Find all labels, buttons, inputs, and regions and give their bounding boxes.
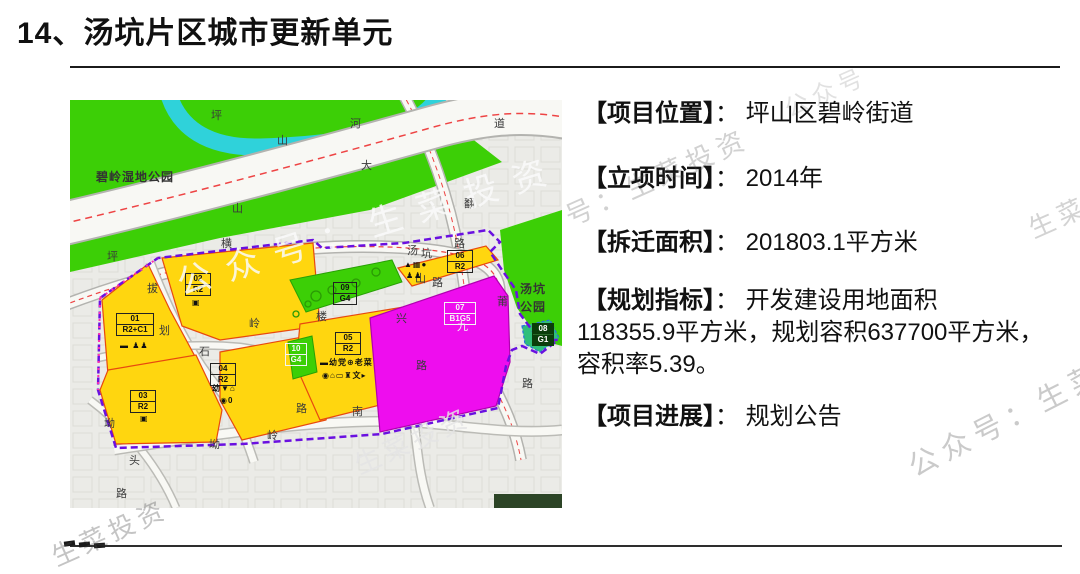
- road-name-char: 路: [432, 278, 443, 289]
- info-value: ： 规划公告: [715, 403, 842, 430]
- zoning-map: 碧岭湿地公园 汤坑 公园 坪 山 河 大 道 山 坪 横 翻 莆 汤 坑 路 山…: [70, 100, 562, 508]
- parcel-code: 06: [448, 251, 472, 261]
- parcel-label-09: 09 G4: [333, 282, 357, 305]
- info-label: 【规划指标】: [583, 287, 715, 314]
- facility-icons-05b: ◉⌂▭♜文▸: [322, 371, 367, 381]
- parcel-label-04: 04 R2: [210, 363, 236, 386]
- parcel-label-07: 07 B1G5: [444, 302, 476, 325]
- parcel-use: R2: [448, 261, 472, 272]
- parcel-use: G1: [533, 334, 553, 345]
- facility-icons-04a: 幼▼⌂: [212, 384, 236, 394]
- road-name-char: 岭: [267, 431, 278, 442]
- footer-divider: [70, 545, 1062, 547]
- parcel-label-08: 08 G1: [532, 323, 554, 346]
- info-value: ： 开发建设用地面积: [715, 287, 938, 314]
- facility-icons-03: ▣: [140, 414, 149, 424]
- parcel-code: 01: [117, 314, 153, 324]
- info-planning-line3: 容积率5.39。: [577, 344, 720, 379]
- parcel-code: 05: [336, 333, 360, 343]
- parcel-label-01: 01 R2+C1: [116, 313, 154, 336]
- info-label: 【拆迁面积】: [583, 229, 715, 256]
- page-title: 14、汤坑片区城市更新单元: [17, 8, 393, 52]
- road-name-char: 汤: [407, 246, 418, 257]
- parcel-label-10: 10 G4: [285, 343, 307, 366]
- info-value: ： 坪山区碧岭街道: [715, 100, 914, 127]
- parcel-label-03: 03 R2: [130, 390, 156, 413]
- info-value: ： 201803.1平方米: [715, 229, 918, 256]
- parcel-use: R2: [186, 284, 210, 295]
- parcel-use: R2: [131, 401, 155, 412]
- road-name-char: 路: [454, 239, 465, 250]
- watermark: 生菜投资: [1022, 162, 1080, 246]
- facility-icons-05a: ▬幼党⊕老菜: [320, 358, 373, 368]
- info-row-location: 【项目位置】： 坪山区碧岭街道: [583, 93, 914, 128]
- road-name-char: 拔: [147, 284, 158, 295]
- info-row-demolition-area: 【拆迁面积】： 201803.1平方米: [583, 222, 918, 257]
- road-name-char: 岭: [249, 319, 260, 330]
- slide: { "title": "14、汤坑片区城市更新单元", "info_rows":…: [0, 0, 1080, 551]
- road-name-char: 楼: [316, 312, 327, 323]
- tangkeng-park-label-1: 汤坑: [520, 280, 546, 297]
- road-name-char: 路: [416, 361, 427, 372]
- river-name-char: 山: [277, 136, 288, 147]
- road-name-char: 头: [129, 456, 140, 467]
- facility-icons-02: ▣: [192, 298, 201, 308]
- facility-icons-04b: ◉0: [220, 396, 233, 406]
- road-name-char: 道: [494, 119, 505, 130]
- road-name-char: 坪: [107, 252, 118, 263]
- facility-icons-06b: ♟♟: [406, 271, 422, 281]
- road-name-char: 坳: [209, 440, 220, 451]
- info-row-start-year: 【立项时间】： 2014年: [583, 158, 823, 193]
- parcel-use: B1G5: [445, 313, 475, 324]
- parcel-label-05: 05 R2: [335, 332, 361, 355]
- parcel-use: R2+C1: [117, 324, 153, 335]
- info-value: ： 2014年: [715, 165, 823, 192]
- road-name-char: 翻: [464, 199, 475, 210]
- parcel-code: 04: [211, 364, 235, 374]
- parcel-label-02: 02 R2: [185, 273, 211, 296]
- info-row-planning-indicators: 【规划指标】： 开发建设用地面积: [583, 280, 938, 315]
- aerial-render-photo: [494, 494, 562, 508]
- parcel-code: 07: [445, 303, 475, 313]
- facility-icons-06a: ▲▦●: [404, 260, 427, 270]
- tangkeng-park-label-2: 公园: [520, 298, 546, 315]
- parcel-code: 02: [186, 274, 210, 284]
- road-name-char: 路: [116, 489, 127, 500]
- parcel-use: G4: [286, 354, 306, 365]
- river-name-char: 河: [350, 119, 361, 130]
- road-name-char: 石: [199, 347, 210, 358]
- info-planning-line2: 118355.9平方米，规划容积637700平方米，: [577, 312, 1043, 347]
- road-name-char: 划: [159, 326, 170, 337]
- road-name-char: 路: [522, 379, 533, 390]
- parcel-code: 08: [533, 324, 553, 334]
- info-row-progress: 【项目进展】： 规划公告: [583, 396, 842, 431]
- road-name-char: 路: [296, 404, 307, 415]
- road-name-char: 兴: [396, 314, 407, 325]
- parcel-code: 10: [286, 344, 306, 354]
- parcel-use: R2: [336, 343, 360, 354]
- parcel-code: 03: [131, 391, 155, 401]
- zoning-map-graphic: [70, 100, 562, 508]
- road-name-char: 莆: [497, 297, 508, 308]
- river-name-char: 坪: [211, 111, 222, 122]
- road-name-char: 山: [232, 204, 243, 215]
- road-name-char: 坳: [104, 419, 115, 430]
- facility-icons-01: ▬ ♟♟: [120, 341, 149, 351]
- header-divider: [70, 66, 1060, 68]
- aerial-render-graphic: [494, 494, 562, 508]
- info-label: 【立项时间】: [583, 165, 715, 192]
- parcel-label-06: 06 R2: [447, 250, 473, 273]
- road-name-char: 大: [361, 161, 372, 172]
- parcel-use: G4: [334, 293, 356, 304]
- road-name-char: 坑: [421, 249, 432, 260]
- road-name-char: 横: [221, 239, 232, 250]
- parcel-code: 09: [334, 283, 356, 293]
- road-name-char: 南: [352, 407, 363, 418]
- wetland-park-label: 碧岭湿地公园: [96, 168, 174, 185]
- info-label: 【项目位置】: [583, 100, 715, 127]
- footer-mark: [94, 543, 105, 549]
- info-label: 【项目进展】: [583, 403, 715, 430]
